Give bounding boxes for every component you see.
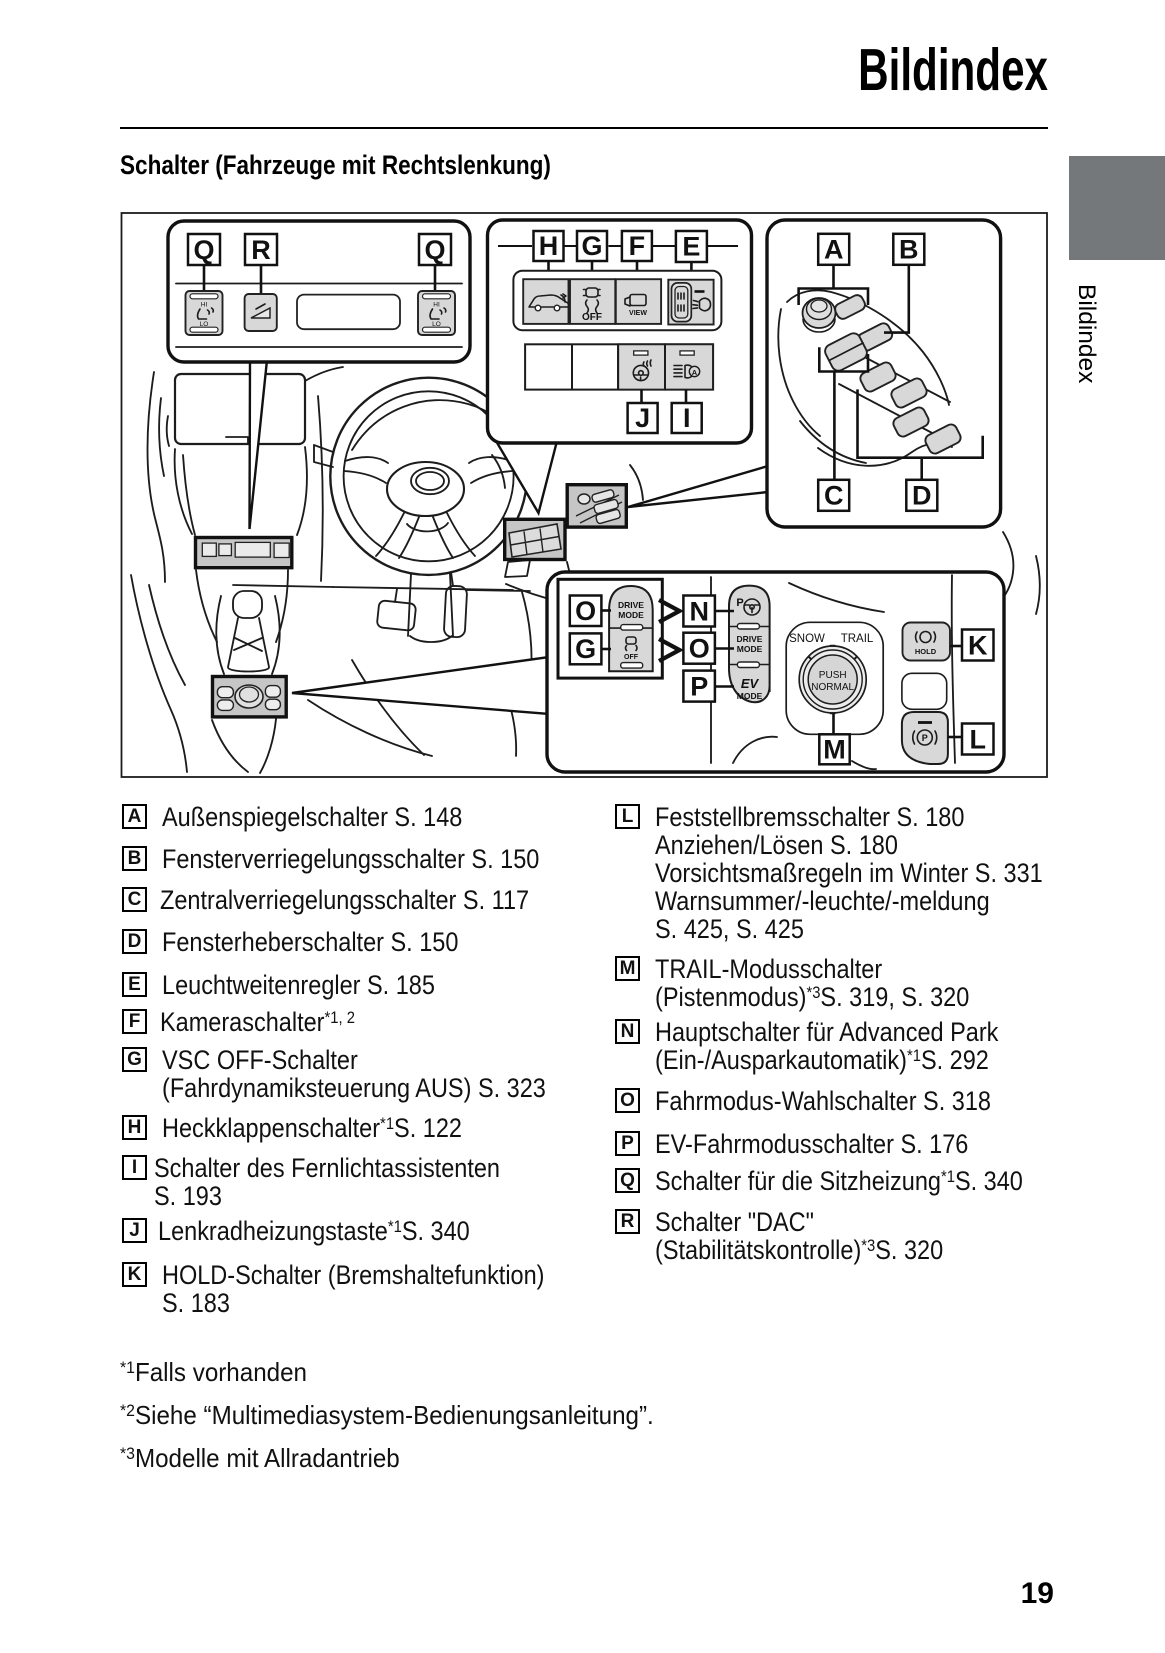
svg-text:L: L <box>969 724 986 754</box>
svg-text:F: F <box>629 231 646 261</box>
svg-text:LO: LO <box>200 321 209 328</box>
svg-text:Q: Q <box>424 235 445 265</box>
svg-text:I: I <box>683 403 691 433</box>
svg-text:HI: HI <box>433 302 440 309</box>
svg-text:NORMAL: NORMAL <box>811 682 854 693</box>
svg-text:MODE: MODE <box>737 644 763 654</box>
svg-text:P: P <box>690 672 708 702</box>
svg-text:N: N <box>689 597 709 627</box>
svg-text:P: P <box>736 597 743 609</box>
svg-text:SNOW: SNOW <box>789 633 825 645</box>
svg-text:C: C <box>824 481 844 511</box>
svg-text:R: R <box>251 235 271 265</box>
svg-text:PUSH: PUSH <box>819 670 847 681</box>
svg-text:P: P <box>922 733 928 743</box>
svg-text:HI: HI <box>201 302 208 309</box>
svg-text:EV: EV <box>741 676 760 691</box>
svg-text:A: A <box>692 368 698 377</box>
svg-text:D: D <box>912 481 932 511</box>
svg-text:MODE: MODE <box>737 691 763 701</box>
svg-text:E: E <box>682 232 700 262</box>
svg-text:OFF: OFF <box>624 654 639 661</box>
svg-text:HOLD: HOLD <box>915 647 937 656</box>
svg-text:DRIVE: DRIVE <box>737 634 763 644</box>
svg-text:G: G <box>581 231 602 261</box>
svg-text:K: K <box>968 630 988 660</box>
svg-text:M: M <box>823 734 846 764</box>
svg-text:Q: Q <box>193 235 214 265</box>
svg-text:VIEW: VIEW <box>629 310 647 317</box>
svg-text:TRAIL: TRAIL <box>841 633 874 645</box>
svg-text:G: G <box>575 634 596 664</box>
svg-text:DRIVE: DRIVE <box>618 600 644 610</box>
svg-text:O: O <box>575 596 596 626</box>
svg-text:OFF: OFF <box>582 312 602 323</box>
svg-text:MODE: MODE <box>618 610 644 620</box>
svg-text:H: H <box>539 231 559 261</box>
svg-text:O: O <box>689 634 710 664</box>
svg-text:J: J <box>635 403 650 433</box>
svg-text:LO: LO <box>432 321 441 328</box>
svg-text:A: A <box>824 235 844 265</box>
svg-text:B: B <box>899 235 919 265</box>
